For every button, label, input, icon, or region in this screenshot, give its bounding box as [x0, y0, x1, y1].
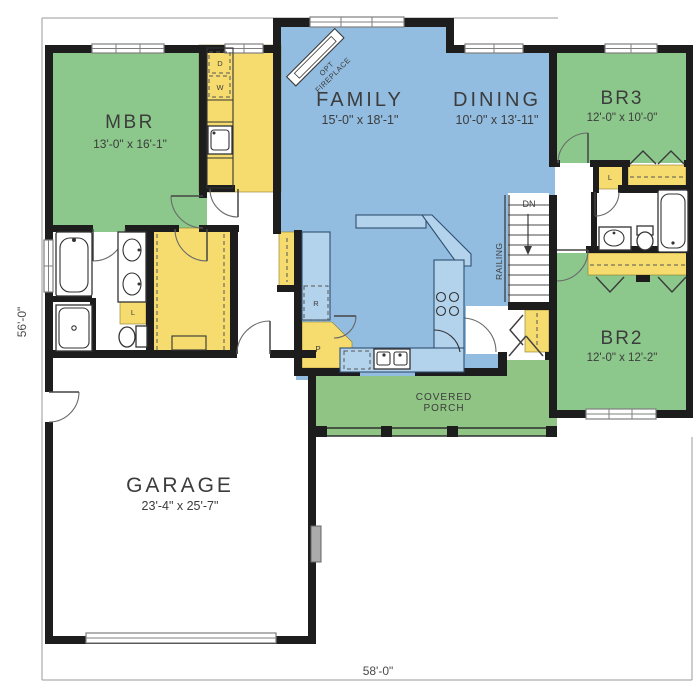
- landing-floor: [555, 163, 593, 253]
- dining-label: DINING: [453, 89, 541, 111]
- bath2-toilet-bowl: [637, 232, 653, 250]
- width-dimension: 58'-0": [363, 664, 394, 678]
- height-dimension: 56'-0": [15, 307, 29, 338]
- laundry-door-arc: [210, 189, 238, 217]
- dining-window: [465, 44, 523, 53]
- washer-label: W: [216, 83, 224, 92]
- master-bath: [56, 232, 147, 351]
- railing-label: RAILING: [494, 242, 504, 280]
- hall-linen-label: L: [608, 173, 612, 182]
- floor-plan: OPT FIREPLACE MBR 13'-0" x 16'-1" FAMILY…: [0, 0, 700, 700]
- stairs-dn-label: DN: [523, 199, 536, 209]
- br2-label: BR2: [601, 328, 644, 349]
- dryer-label: D: [217, 59, 223, 68]
- master-linen-label: L: [131, 308, 135, 317]
- br3-window: [605, 44, 657, 53]
- porch-post: [447, 426, 458, 437]
- garage-service-window: [311, 526, 321, 562]
- toilet-bowl: [119, 327, 135, 347]
- br3-size: 12'-0" x 10'-0": [587, 112, 658, 124]
- master-vanity: [118, 232, 146, 302]
- porch-post: [381, 426, 392, 437]
- garage-overhead-door: [86, 633, 276, 643]
- garage-size: 23'-4" x 25'-7": [142, 499, 219, 513]
- porch-post: [316, 426, 327, 437]
- tub-faucet: [72, 238, 76, 242]
- refrigerator-label: R: [313, 299, 319, 308]
- br2-size: 12'-0" x 12'-2": [587, 352, 658, 364]
- bath-window: [44, 240, 53, 292]
- porch-post: [546, 426, 557, 437]
- garage-entry-door-arc: [237, 321, 270, 354]
- bedroom2-closet-floor: [588, 253, 690, 275]
- bath2-tub-drain: [671, 241, 674, 244]
- walkin-closet-floor: [150, 228, 233, 354]
- br2-window: [586, 409, 656, 419]
- kitchen-bar-counter: [356, 215, 426, 228]
- family-size: 15'-0" x 18'-1": [322, 113, 399, 127]
- kitchen-right-counter: [434, 260, 464, 350]
- hall-bath: [599, 190, 688, 252]
- floor-plan-drawing: OPT FIREPLACE MBR 13'-0" x 16'-1" FAMILY…: [0, 0, 700, 700]
- garage-label: GARAGE: [126, 474, 234, 497]
- mbr-size: 13'-0" x 16'-1": [93, 137, 167, 151]
- porch-label-line2: PORCH: [423, 403, 464, 414]
- dining-size: 10'-0" x 13'-11": [456, 113, 539, 127]
- garage-side-door-arc: [49, 392, 79, 422]
- pantry-label: P: [315, 345, 320, 354]
- master-shower: [56, 305, 92, 351]
- toilet-tank: [136, 326, 147, 347]
- bath2-door-arc: [595, 192, 619, 216]
- porch-label-line1: COVERED: [416, 392, 472, 403]
- laundry-floor: [199, 45, 281, 192]
- family-window: [310, 17, 404, 27]
- mbr-label: MBR: [105, 112, 155, 133]
- family-label: FAMILY: [316, 89, 404, 111]
- mbr-window: [92, 44, 164, 53]
- br3-label: BR3: [601, 88, 644, 109]
